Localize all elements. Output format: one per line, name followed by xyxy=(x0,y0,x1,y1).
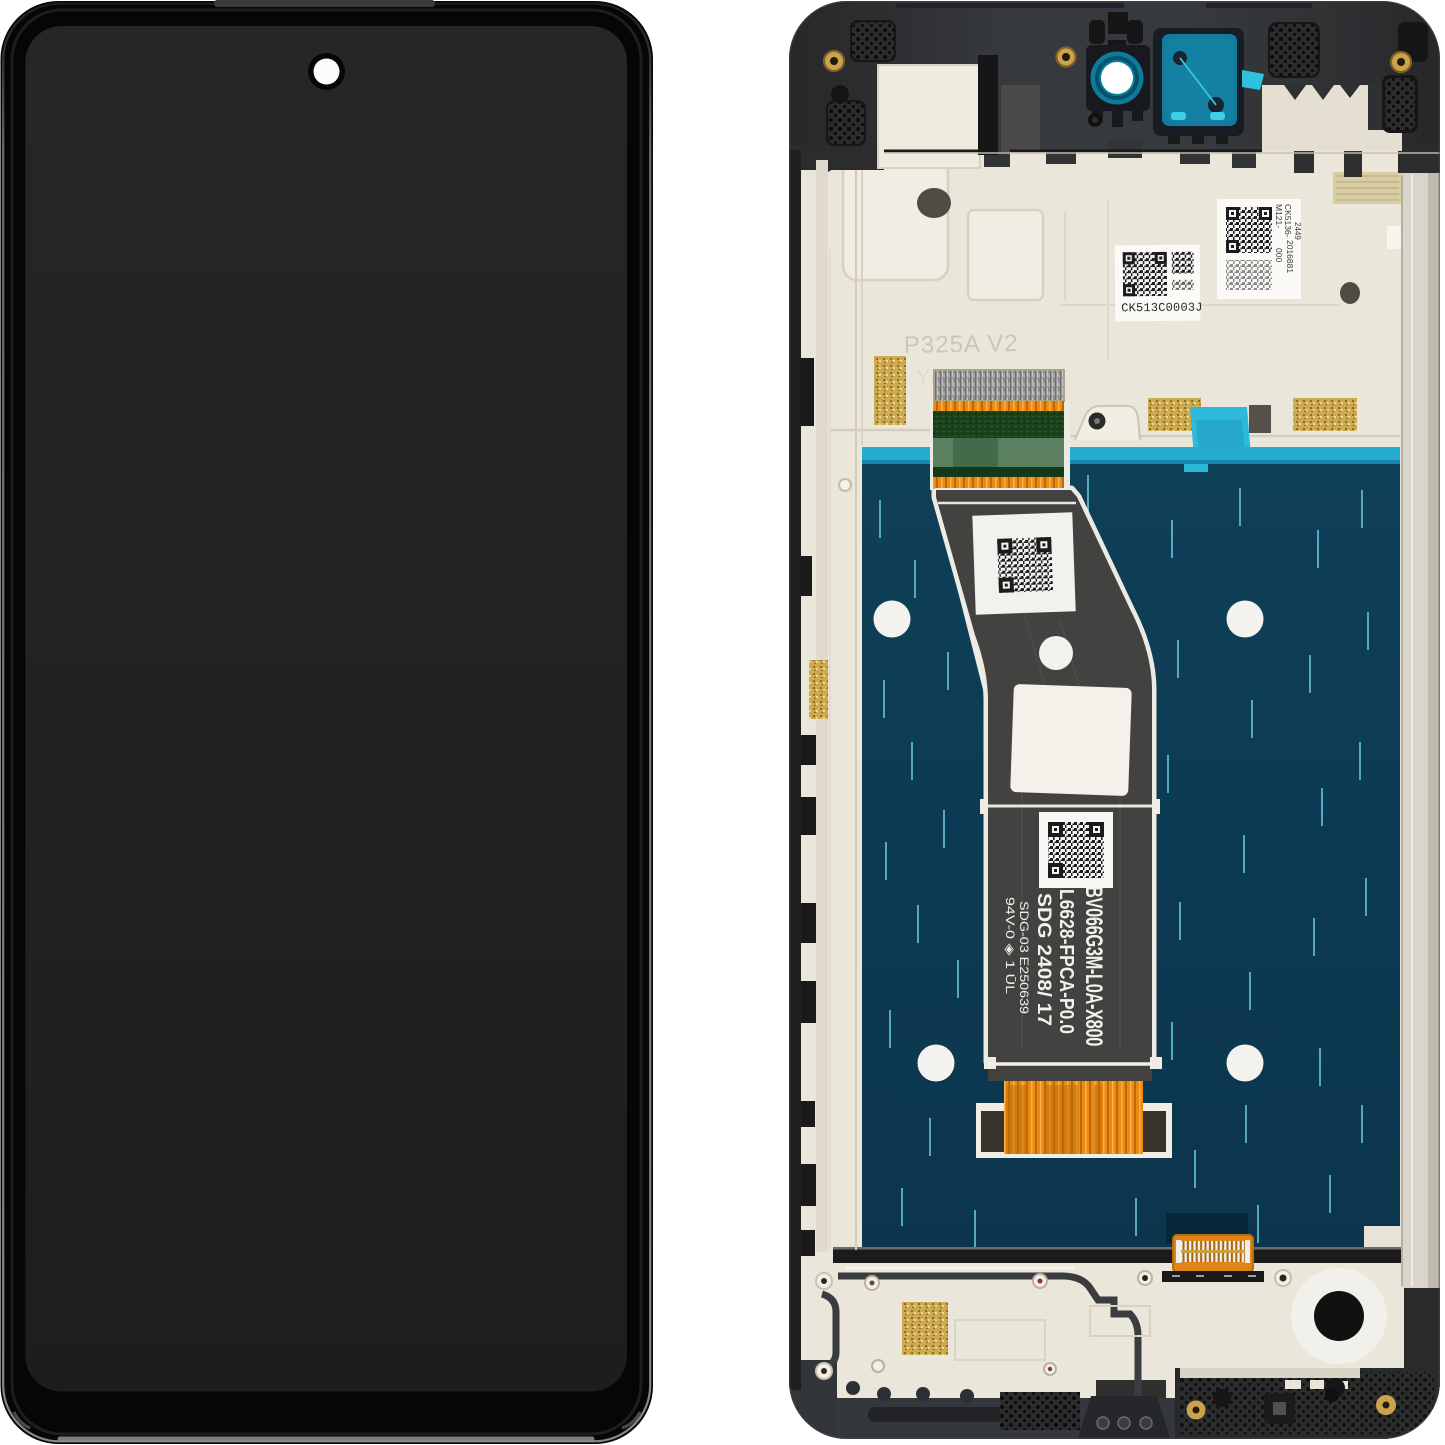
svg-text:BV066G3M-L0A-X800: BV066G3M-L0A-X800 xyxy=(1080,886,1107,1046)
svg-text:2449: 2449 xyxy=(1293,222,1302,240)
svg-text:2016881: 2016881 xyxy=(1285,240,1295,273)
svg-text:SDG 2408/ 17: SDG 2408/ 17 xyxy=(1033,893,1054,1026)
svg-text:SDG-03 E250639: SDG-03 E250639 xyxy=(1017,901,1031,1014)
svg-text:CK513C0003J: CK513C0003J xyxy=(1121,301,1203,316)
svg-text:000: 000 xyxy=(1274,248,1284,262)
svg-text:M121-: M121- xyxy=(1274,204,1284,228)
svg-text:94V-0 ◈ 1 ŪL: 94V-0 ◈ 1 ŪL xyxy=(1003,897,1017,994)
svg-text:P325A V2: P325A V2 xyxy=(904,330,1019,359)
svg-text:CK5136-: CK5136- xyxy=(1283,204,1293,238)
svg-text:L6628-FPCA-P0.0: L6628-FPCA-P0.0 xyxy=(1055,889,1077,1034)
